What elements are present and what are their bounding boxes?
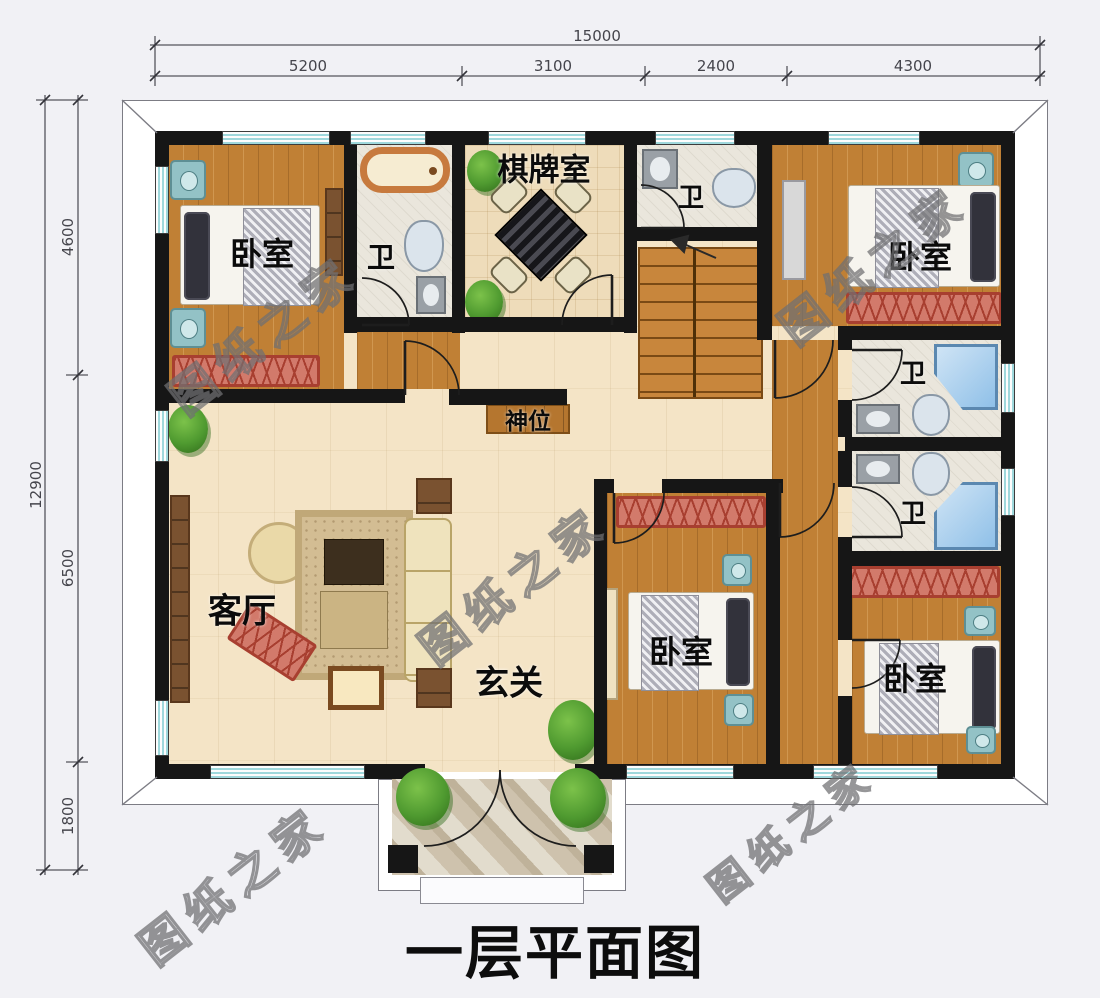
wall [838, 451, 852, 487]
toilet [912, 394, 950, 436]
sink [642, 149, 678, 189]
dim-top-seg-1: 5200 [289, 57, 327, 75]
window [155, 166, 169, 234]
wall [630, 227, 772, 241]
fire-table [328, 666, 384, 710]
wall [845, 437, 1002, 451]
window [488, 131, 586, 145]
wardrobe [325, 188, 343, 276]
nightstand [170, 160, 206, 200]
living-rug [295, 510, 413, 680]
potted-plant [168, 405, 208, 453]
window [155, 700, 169, 756]
wall [838, 400, 852, 437]
wall [344, 140, 357, 333]
dim-top-total: 15000 [573, 27, 621, 45]
dim-top-seg-2: 3100 [534, 57, 572, 75]
bathroom-cabinet [416, 276, 446, 314]
stair-rail [693, 249, 696, 397]
corridor-floor [772, 340, 838, 764]
window [828, 131, 920, 145]
nightstand [958, 152, 994, 188]
porch-bush [550, 768, 606, 828]
bedroom-top-left-floor-ext [357, 331, 460, 389]
wall [838, 537, 852, 551]
label-bath-top-left: 卫 [367, 236, 395, 276]
wall [766, 479, 780, 769]
wall [838, 551, 1002, 566]
label-bedroom-top-left: 卧室 [230, 229, 294, 275]
sofa [404, 518, 452, 682]
nightstand [964, 606, 996, 636]
wall [452, 140, 465, 333]
wardrobe [782, 180, 806, 280]
wall [662, 479, 783, 493]
dim-left-total: 12900 [27, 461, 45, 509]
nightstand [724, 694, 754, 726]
side-table [416, 478, 452, 514]
wall [838, 696, 852, 766]
label-shrine: 神位 [505, 402, 551, 436]
porch-bush [396, 768, 450, 826]
wall [344, 317, 637, 332]
porch-wall-stub [388, 845, 418, 873]
rug-tray [324, 539, 384, 585]
bed-pillows [726, 598, 750, 686]
sink [856, 404, 900, 434]
plan-title: 一层平面图 [405, 906, 705, 990]
wall [838, 566, 852, 640]
window [155, 410, 169, 462]
sink [856, 454, 900, 484]
label-bedroom-bottom-center: 卧室 [649, 627, 713, 673]
window [210, 765, 365, 779]
window [1001, 363, 1015, 413]
bench [846, 292, 1002, 324]
bed-pillows [972, 646, 996, 730]
label-bath-right-2: 卫 [900, 494, 926, 531]
window [350, 131, 426, 145]
wall [838, 326, 1002, 340]
wall [838, 326, 852, 350]
tv-cabinet [170, 495, 190, 703]
dim-top-seg-4: 4300 [894, 57, 932, 75]
label-bath-top-center: 卫 [678, 178, 704, 215]
label-bath-right-1: 卫 [900, 354, 926, 391]
window [655, 131, 735, 145]
entry-plant [548, 700, 598, 760]
dim-left-seg-2: 6500 [59, 549, 77, 587]
staircase [638, 247, 763, 399]
label-bedroom-top-right: 卧室 [888, 232, 952, 278]
window [626, 765, 734, 779]
bench [848, 566, 1000, 598]
bench [616, 496, 766, 528]
label-living-room: 客厅 [208, 584, 276, 633]
nightstand [722, 554, 752, 586]
bathtub [360, 147, 450, 193]
watermark: 图纸之家 [123, 788, 340, 978]
window [813, 765, 938, 779]
window [222, 131, 330, 145]
bench [172, 355, 320, 387]
toilet [912, 452, 950, 496]
side-table [416, 668, 452, 708]
wall [594, 479, 607, 769]
toilet [404, 220, 444, 272]
nightstand [170, 308, 206, 348]
toilet [712, 168, 756, 208]
label-entry: 玄关 [475, 656, 543, 705]
dim-top-seg-3: 2400 [697, 57, 735, 75]
coffee-table [320, 591, 388, 649]
porch-wall-stub [584, 845, 614, 873]
floor-plan-page: 15000 5200 3100 2400 4300 12900 4600 650… [0, 0, 1100, 998]
wall [155, 389, 405, 403]
bed-pillows [970, 192, 996, 282]
label-chess-room: 棋牌室 [498, 145, 591, 190]
label-bedroom-bottom-right: 卧室 [883, 654, 947, 700]
nightstand [966, 726, 996, 754]
porch-step [420, 877, 584, 904]
window [1001, 468, 1015, 516]
bed-pillows [184, 212, 210, 300]
dim-left-seg-1: 4600 [59, 218, 77, 256]
dim-left-seg-3: 1800 [59, 797, 77, 835]
wall [594, 479, 614, 493]
wall [1001, 131, 1015, 779]
